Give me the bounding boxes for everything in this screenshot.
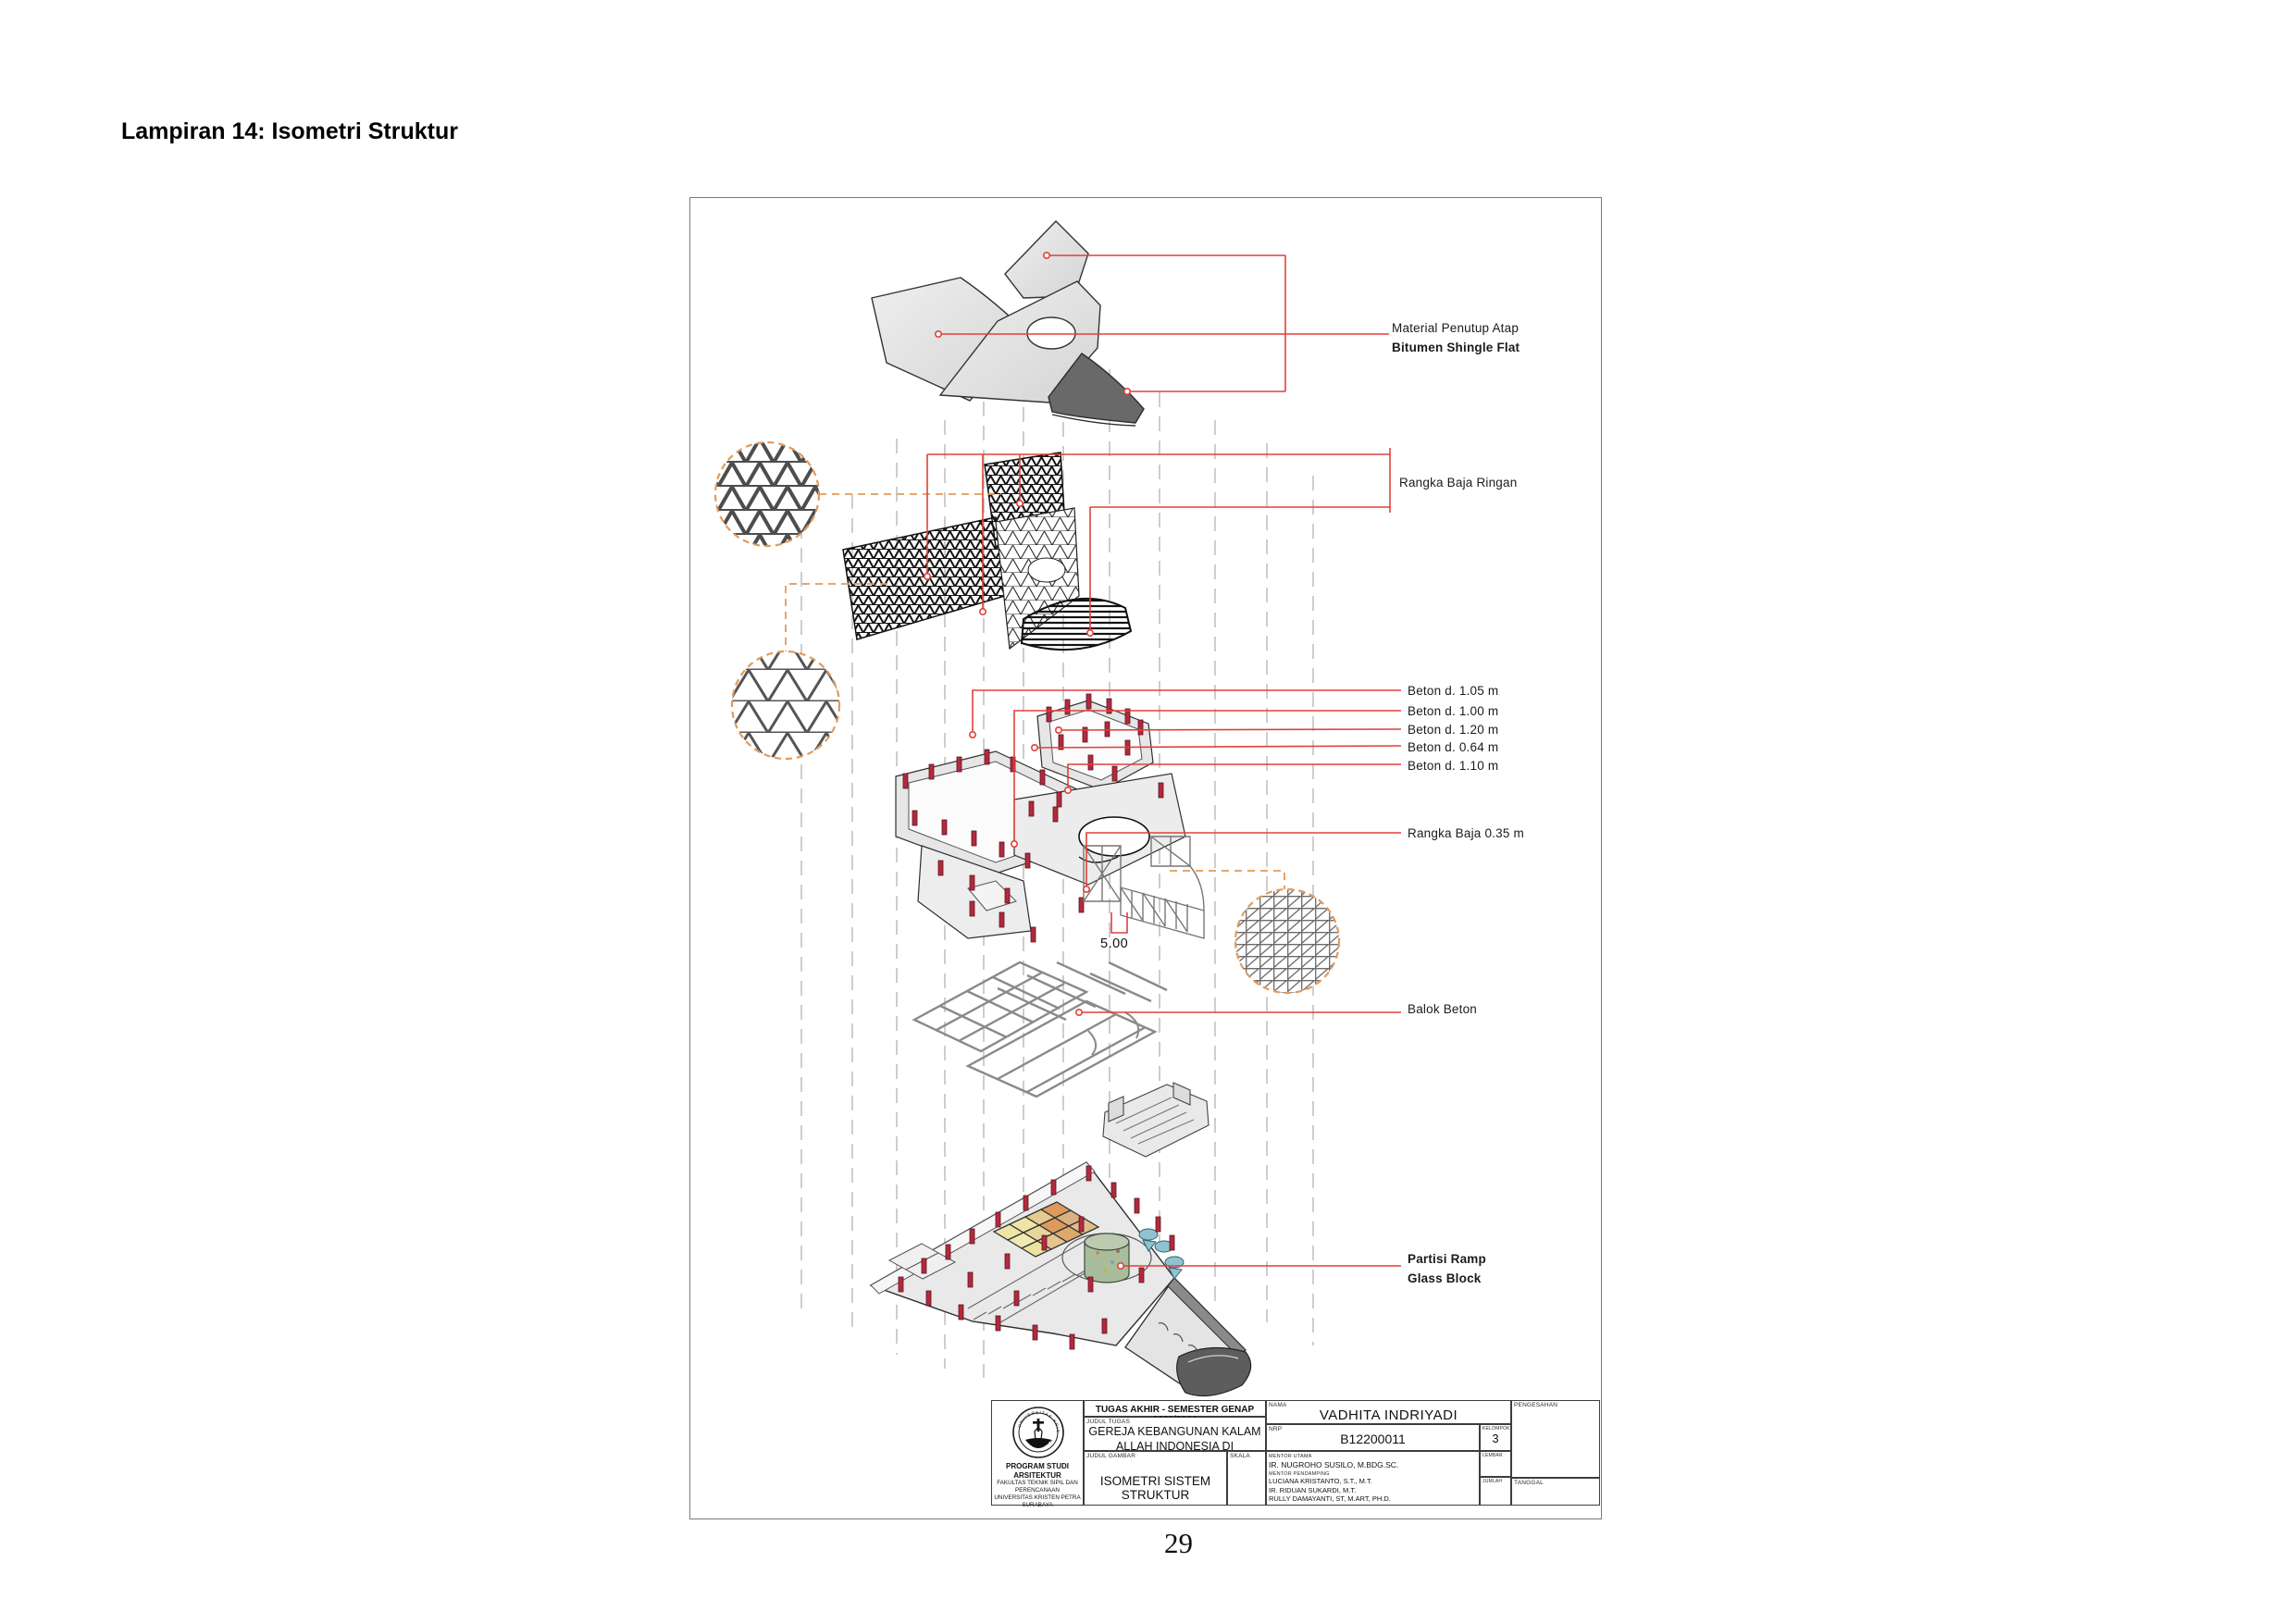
lembar-label: LEMBAR <box>1482 1453 1503 1458</box>
concrete-beam-grid <box>914 962 1167 1097</box>
skala-label: SKALA <box>1230 1453 1250 1459</box>
jumlah-label: JUMLAH <box>1482 1479 1502 1484</box>
label-partition: Partisi Ramp Glass Block <box>1408 1250 1486 1289</box>
drawing-sheet: Material Penutup Atap Bitumen Shingle Fl… <box>689 197 1602 1519</box>
tanggal-cell: TANGGAL <box>1511 1478 1600 1506</box>
mentor-pendamping-2: IR. RIDUAN SUKARDI, M.T. <box>1269 1486 1479 1495</box>
steel-truss-layer <box>843 452 1131 650</box>
title-block-header-cell: TUGAS AKHIR - SEMESTER GENAP 2023/2024 <box>1084 1400 1266 1417</box>
concrete-wall-layer <box>896 700 1185 938</box>
project-title-line1: GEREJA KEBANGUNAN KALAM <box>1085 1425 1265 1440</box>
title-block-logo-cell: UNIVERSITAS KRISTEN PETRA PROGRAM STUDI … <box>991 1400 1084 1506</box>
isometric-structure-diagram <box>690 198 1601 1519</box>
program-study-text: PROGRAM STUDI ARSITEKTUR FAKULTAS TEKNIK… <box>992 1462 1083 1509</box>
label-concrete-beam: Balok Beton <box>1408 1000 1477 1020</box>
label-beton-2: Beton d. 1.00 m <box>1408 702 1498 722</box>
judul-tugas-label: JUDUL TUGAS <box>1086 1419 1130 1425</box>
label-partition-line2: Glass Block <box>1408 1270 1486 1289</box>
label-beton-1: Beton d. 1.05 m <box>1408 682 1498 701</box>
mentor-cell: MENTOR UTAMA IR. NUGROHO SUSILO, M.BDG.S… <box>1266 1451 1480 1506</box>
mentor-utama-name: IR. NUGROHO SUSILO, M.BDG.SC. <box>1269 1460 1479 1469</box>
label-steel-frame: Rangka Baja 0.35 m <box>1408 824 1524 844</box>
drawing-title: ISOMETRI SISTEM STRUKTUR <box>1085 1474 1226 1502</box>
page-number: 29 <box>1164 1527 1193 1560</box>
dimension-value: 5.00 <box>1100 936 1128 951</box>
tanggal-label: TANGGAL <box>1514 1480 1544 1486</box>
label-roof-material-line2: Bitumen Shingle Flat <box>1392 339 1520 358</box>
judul-tugas-cell: JUDUL TUGAS GEREJA KEBANGUNAN KALAM ALLA… <box>1084 1417 1266 1451</box>
label-roof-material: Material Penutup Atap Bitumen Shingle Fl… <box>1392 319 1520 358</box>
label-beton-4: Beton d. 0.64 m <box>1408 738 1498 758</box>
nama-cell: NAMA VADHITA INDRIYADI <box>1266 1400 1511 1424</box>
skala-cell: SKALA <box>1227 1451 1266 1506</box>
label-light-steel-truss: Rangka Baja Ringan <box>1399 474 1517 493</box>
judul-gambar-cell: JUDUL GAMBAR ISOMETRI SISTEM STRUKTUR <box>1084 1451 1227 1506</box>
petra-university-logo: UNIVERSITAS KRISTEN PETRA <box>992 1403 1085 1462</box>
ramp-object <box>1103 1083 1209 1157</box>
student-id: B12200011 <box>1267 1432 1479 1446</box>
roof-panel-layer <box>872 221 1144 426</box>
title-block: UNIVERSITAS KRISTEN PETRA PROGRAM STUDI … <box>991 1400 1600 1506</box>
mentor-pendamping-1: LUCIANA KRISTANTO, S.T., M.T. <box>1269 1477 1479 1486</box>
appendix-heading: Lampiran 14: Isometri Struktur <box>121 118 458 145</box>
kelompok-cell: KELOMPOK 3 <box>1480 1424 1511 1451</box>
mentor-utama-label: MENTOR UTAMA <box>1269 1454 1479 1459</box>
program-line-2: FAKULTAS TEKNIK SIPIL DAN PERENCANAAN <box>992 1480 1083 1494</box>
pengesahan-cell: PENGESAHAN <box>1511 1400 1600 1478</box>
dimension-bracket <box>1111 912 1127 933</box>
jumlah-cell: JUMLAH <box>1480 1477 1511 1506</box>
mentor-pendamping-3: RULLY DAMAYANTI, ST, M.ART, PH.D. <box>1269 1494 1479 1504</box>
lembar-cell: LEMBAR <box>1480 1451 1511 1477</box>
program-line-3: UNIVERSITAS KRISTEN PETRA <box>992 1494 1083 1502</box>
document-page: { "page": { "heading": "Lampiran 14: Iso… <box>0 0 2295 1624</box>
ground-floor-layer <box>871 1162 1251 1396</box>
pengesahan-label: PENGESAHAN <box>1514 1402 1557 1408</box>
label-beton-5: Beton d. 1.10 m <box>1408 757 1498 776</box>
label-roof-material-line1: Material Penutup Atap <box>1392 319 1520 339</box>
group-number: 3 <box>1481 1432 1510 1445</box>
nrp-cell: NRP B12200011 <box>1266 1424 1480 1451</box>
student-name: VADHITA INDRIYADI <box>1267 1407 1510 1423</box>
program-line-1: PROGRAM STUDI ARSITEKTUR <box>992 1462 1083 1480</box>
program-line-4: SURABAYA <box>992 1502 1083 1509</box>
label-partition-line1: Partisi Ramp <box>1408 1250 1486 1270</box>
judul-gambar-label: JUDUL GAMBAR <box>1086 1453 1135 1459</box>
label-beton-3: Beton d. 1.20 m <box>1408 721 1498 740</box>
